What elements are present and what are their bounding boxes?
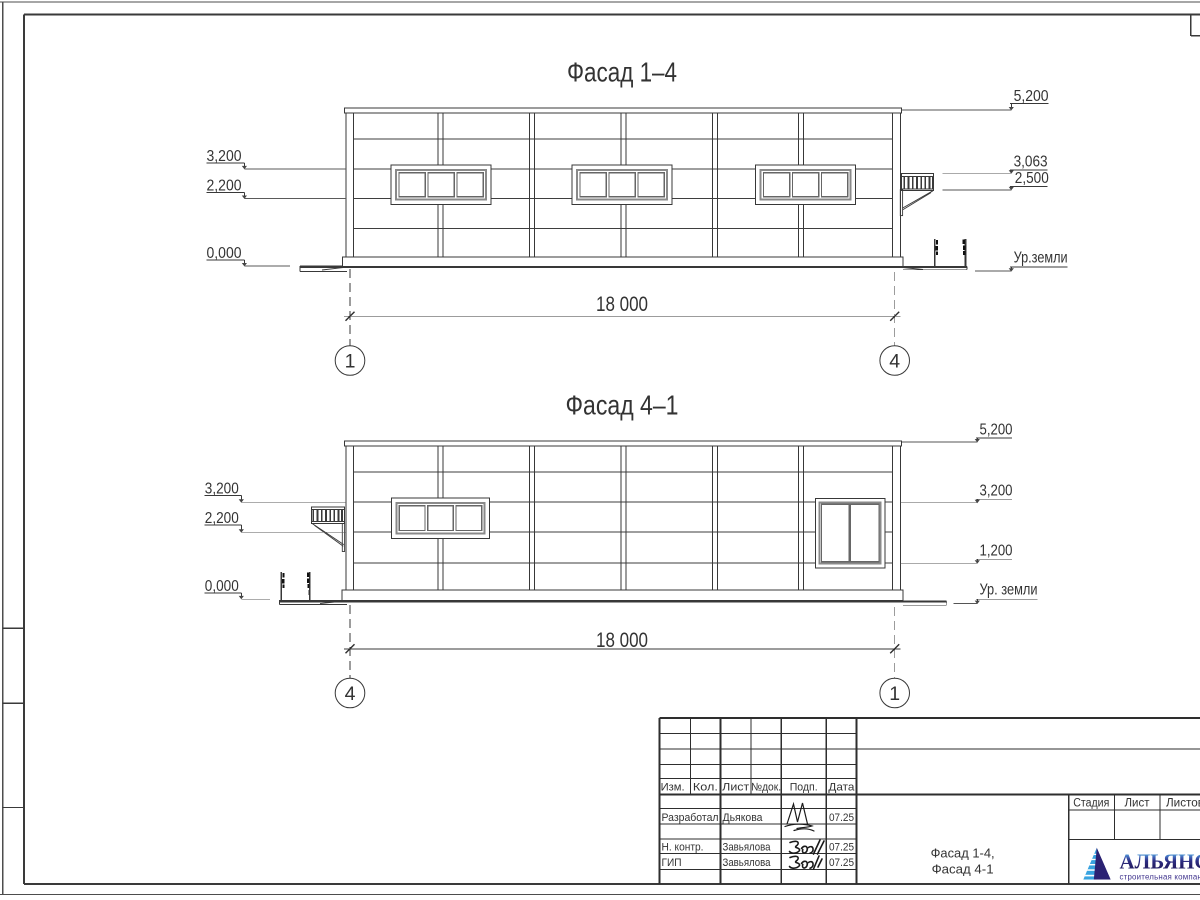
svg-text:Завьялова: Завьялова <box>723 841 772 853</box>
svg-text:Завьялова: Завьялова <box>723 857 772 869</box>
svg-text:Ур.земли: Ур.земли <box>1014 250 1068 267</box>
svg-text:Подп.: Подп. <box>790 782 818 794</box>
svg-text:№док.: №док. <box>751 782 781 794</box>
svg-text:Изм.: Изм. <box>661 782 685 794</box>
svg-text:1: 1 <box>889 683 900 705</box>
svg-text:Фасад 1–4: Фасад 1–4 <box>567 57 677 88</box>
svg-text:Разработал: Разработал <box>662 812 719 824</box>
svg-text:Фасад 4-1: Фасад 4-1 <box>932 862 994 877</box>
svg-text:ГИП: ГИП <box>662 857 682 869</box>
svg-text:строительная компания: строительная компания <box>1120 872 1200 881</box>
svg-text:3,200: 3,200 <box>980 483 1013 500</box>
svg-text:Кол.: Кол. <box>693 782 718 794</box>
svg-text:Дьякова: Дьякова <box>723 812 764 824</box>
svg-text:2,500: 2,500 <box>1015 170 1049 187</box>
svg-text:Лист: Лист <box>1125 798 1151 810</box>
svg-text:Лист: Лист <box>722 782 749 794</box>
svg-text:АЛЬЯНС: АЛЬЯНС <box>1120 850 1200 874</box>
svg-text:1,200: 1,200 <box>980 543 1013 560</box>
svg-text:4: 4 <box>345 683 356 705</box>
svg-text:3,200: 3,200 <box>205 481 239 498</box>
svg-text:2,200: 2,200 <box>207 178 242 195</box>
svg-text:18 000: 18 000 <box>596 629 648 652</box>
svg-text:0,000: 0,000 <box>205 578 239 595</box>
svg-text:07.25: 07.25 <box>829 812 854 824</box>
svg-text:Дата: Дата <box>828 782 855 794</box>
svg-text:4: 4 <box>889 350 900 372</box>
svg-text:07.25: 07.25 <box>829 857 854 869</box>
svg-text:1: 1 <box>345 350 356 372</box>
svg-text:18 000: 18 000 <box>596 293 648 316</box>
svg-text:Фасад 4–1: Фасад 4–1 <box>566 390 679 421</box>
svg-text:5,200: 5,200 <box>1014 88 1049 105</box>
svg-text:3,063: 3,063 <box>1014 153 1048 170</box>
svg-text:5,200: 5,200 <box>980 422 1013 439</box>
svg-text:Фасад 1-4,: Фасад 1-4, <box>931 846 995 861</box>
svg-text:Ур. земли: Ур. земли <box>980 581 1038 598</box>
svg-text:Н. контр.: Н. контр. <box>662 841 704 853</box>
svg-text:Листов: Листов <box>1166 798 1200 810</box>
svg-text:2,200: 2,200 <box>205 510 239 527</box>
svg-text:07.25: 07.25 <box>829 841 854 853</box>
svg-text:Стадия: Стадия <box>1073 798 1109 810</box>
